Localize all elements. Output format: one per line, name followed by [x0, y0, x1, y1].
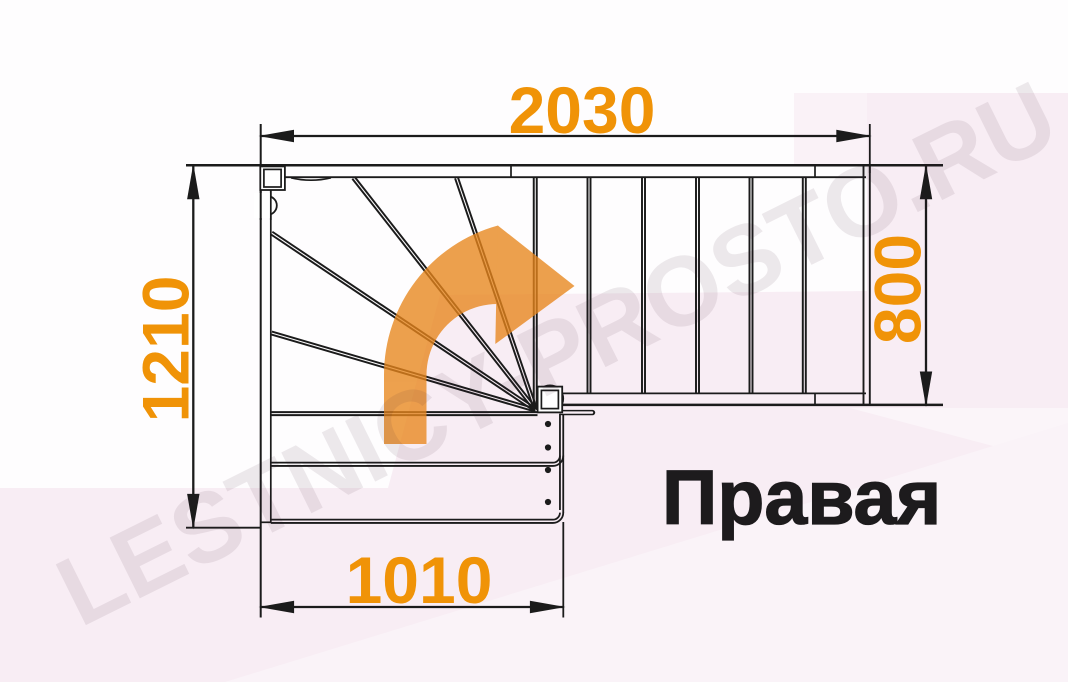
svg-text:2030: 2030	[509, 73, 656, 147]
svg-text:Правая: Правая	[662, 455, 941, 541]
svg-text:1210: 1210	[129, 276, 203, 423]
svg-text:1010: 1010	[346, 543, 493, 617]
